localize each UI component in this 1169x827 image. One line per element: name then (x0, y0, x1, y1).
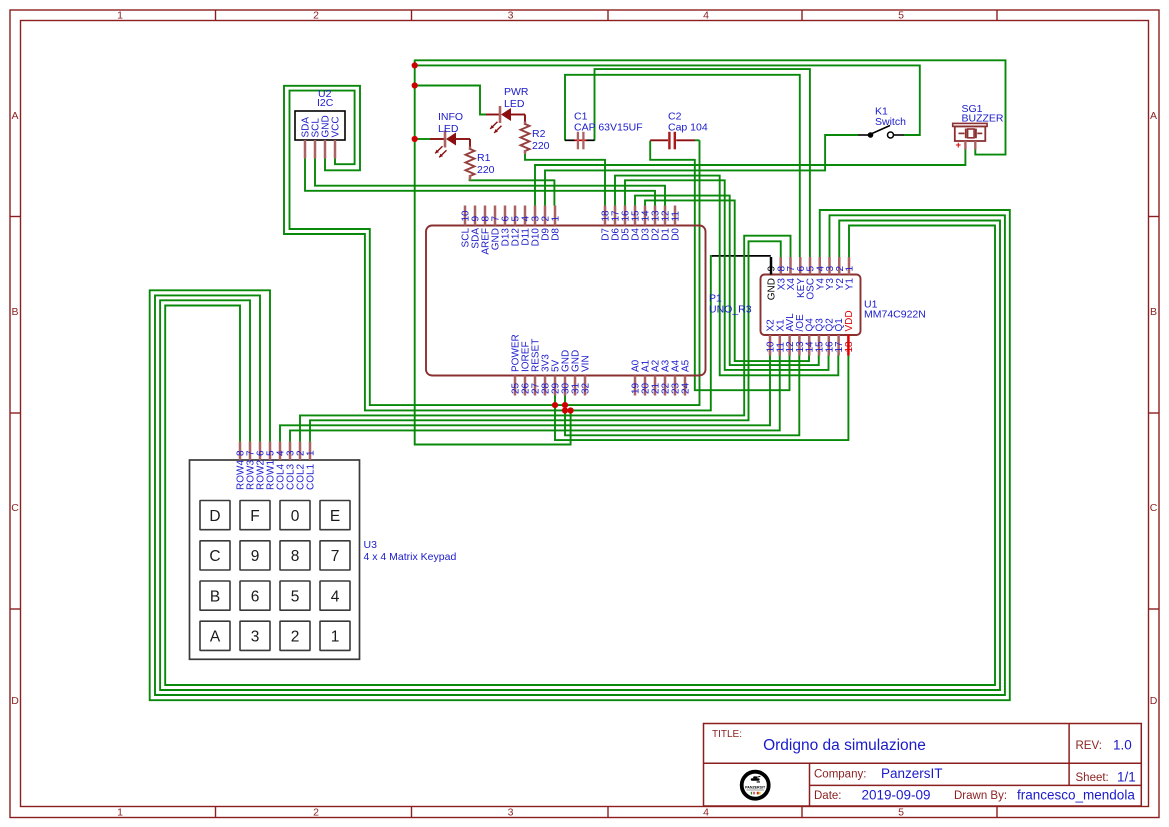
svg-text:+: + (956, 140, 962, 151)
svg-text:C: C (209, 548, 220, 565)
svg-text:I2C: I2C (317, 97, 334, 109)
svg-text:PanzersIT: PanzersIT (881, 766, 943, 781)
svg-text:VIN: VIN (581, 355, 592, 372)
svg-text:0: 0 (291, 508, 300, 525)
svg-text:4: 4 (703, 806, 709, 818)
svg-text:Sheet:: Sheet: (1076, 772, 1109, 784)
svg-text:2: 2 (313, 10, 319, 22)
svg-text:Cap 104: Cap 104 (668, 122, 708, 134)
svg-text:1: 1 (117, 10, 123, 22)
svg-text:220: 220 (477, 164, 495, 176)
svg-text:A5: A5 (681, 359, 692, 372)
svg-text:3: 3 (251, 629, 260, 646)
svg-text:PWR: PWR (504, 86, 529, 98)
svg-text:5: 5 (898, 10, 904, 22)
svg-text:11: 11 (671, 211, 682, 222)
svg-text:B: B (11, 306, 18, 318)
svg-text:D: D (11, 695, 19, 707)
svg-text:Company:: Company: (814, 769, 866, 781)
svg-text:TITLE:: TITLE: (712, 729, 742, 740)
svg-text:6: 6 (251, 588, 260, 605)
svg-text:2019-09-09: 2019-09-09 (862, 788, 931, 803)
svg-text:2: 2 (291, 629, 300, 646)
svg-text:4 x 4 Matrix Keypad: 4 x 4 Matrix Keypad (364, 551, 457, 563)
svg-text:B: B (1150, 306, 1157, 318)
svg-text:D: D (1150, 695, 1158, 707)
svg-text:COL1: COL1 (306, 463, 317, 490)
svg-text:8: 8 (291, 548, 300, 565)
svg-text:UNO_R3: UNO_R3 (709, 304, 752, 316)
svg-text:5: 5 (898, 806, 904, 818)
svg-text:A: A (11, 110, 18, 122)
svg-text:C: C (11, 502, 19, 514)
svg-text:LED: LED (504, 98, 525, 110)
svg-text:CAP 63V15UF: CAP 63V15UF (574, 122, 643, 134)
svg-text:3: 3 (508, 806, 514, 818)
svg-text:1: 1 (117, 806, 123, 818)
svg-text:Switch: Switch (875, 116, 906, 128)
svg-text:Ordigno da simulazione: Ordigno da simulazione (763, 737, 926, 754)
svg-text:32: 32 (581, 382, 592, 394)
svg-text:D: D (209, 508, 220, 525)
svg-text:1: 1 (306, 450, 317, 456)
svg-text:U3: U3 (364, 539, 378, 551)
svg-text:5: 5 (291, 588, 300, 605)
svg-text:4: 4 (331, 588, 340, 605)
svg-text:D8: D8 (551, 228, 562, 241)
svg-text:1: 1 (331, 629, 340, 646)
svg-text:B: B (210, 588, 220, 605)
svg-text:1: 1 (551, 216, 562, 222)
svg-text:Date:: Date: (814, 790, 842, 802)
svg-text:24: 24 (681, 382, 692, 394)
svg-text:Drawn By:: Drawn By: (954, 790, 1007, 802)
svg-text:R1: R1 (477, 152, 491, 164)
svg-text:Y1: Y1 (845, 278, 856, 291)
svg-text:francesco_mendola: francesco_mendola (1017, 788, 1135, 803)
svg-text:C: C (1150, 502, 1158, 514)
svg-text:F: F (250, 508, 259, 525)
svg-text:MM74C922N: MM74C922N (864, 309, 926, 321)
svg-text:7: 7 (331, 548, 340, 565)
svg-text:E: E (330, 508, 340, 525)
svg-text:REV:: REV: (1076, 740, 1102, 752)
svg-text:LED: LED (438, 123, 459, 135)
svg-text:D0: D0 (671, 228, 682, 241)
svg-text:1.0: 1.0 (1113, 738, 1132, 753)
svg-text:4: 4 (703, 10, 709, 22)
svg-text:1: 1 (845, 266, 856, 272)
svg-text:PANZERSIT: PANZERSIT (745, 785, 766, 789)
svg-text:2: 2 (313, 806, 319, 818)
svg-text:INFO: INFO (438, 111, 463, 123)
svg-text:9: 9 (251, 548, 260, 565)
svg-text:3: 3 (508, 10, 514, 22)
svg-text:BUZZER: BUZZER (962, 113, 1004, 125)
svg-text:220: 220 (532, 140, 550, 152)
svg-text:VCC: VCC (331, 116, 342, 137)
svg-text:18: 18 (844, 341, 855, 353)
svg-text:A: A (210, 629, 221, 646)
svg-text:R2: R2 (532, 128, 546, 140)
svg-text:A: A (1150, 110, 1157, 122)
svg-text:1/1: 1/1 (1117, 770, 1136, 785)
svg-text:VDD: VDD (844, 310, 855, 331)
